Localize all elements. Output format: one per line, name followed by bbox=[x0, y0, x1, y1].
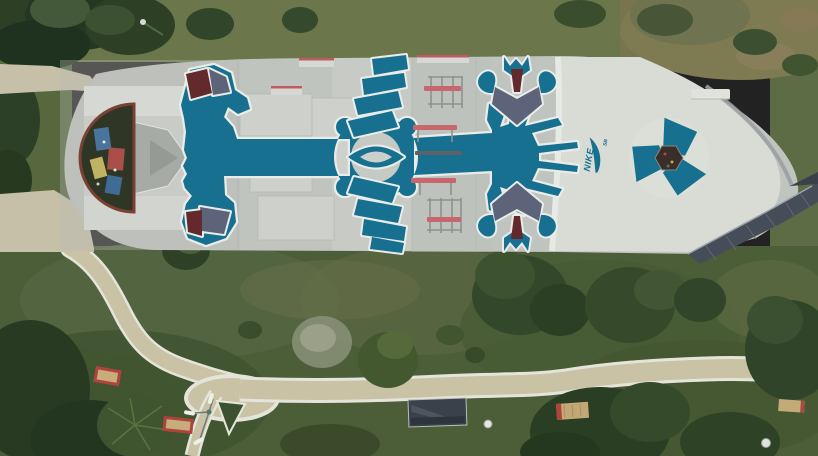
bench-4 bbox=[778, 399, 805, 413]
bench-2 bbox=[162, 416, 193, 434]
ground-lamp-2 bbox=[762, 439, 771, 448]
bench-3 bbox=[556, 402, 589, 420]
nike-sb-text: SB bbox=[602, 138, 609, 146]
ground-lamp-1 bbox=[484, 420, 492, 428]
aerial-photo: NIKE SB bbox=[0, 0, 818, 456]
info-panel bbox=[408, 398, 467, 427]
